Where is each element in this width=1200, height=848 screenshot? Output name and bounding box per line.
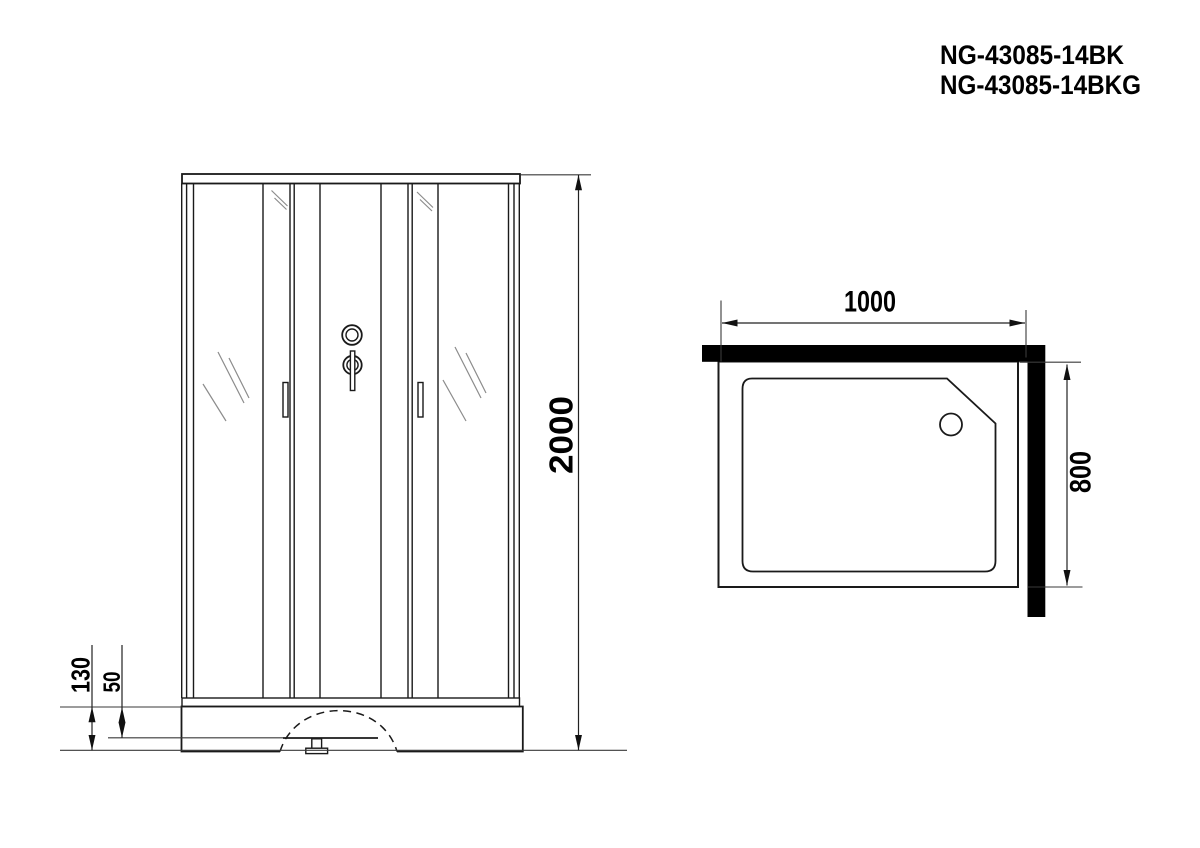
model-number-line2: NG-43085-14BKG	[940, 70, 1141, 100]
glass-hatch-marks	[203, 191, 486, 422]
right-door-handle	[418, 383, 423, 418]
drain-foot	[306, 739, 328, 754]
drain-foot-flange	[306, 748, 328, 753]
top-plan-view	[702, 345, 1045, 617]
dim-label-tray-inner-height: 50	[99, 672, 126, 693]
bottom-rail	[182, 698, 520, 707]
cabin-top-bar	[182, 174, 520, 184]
model-number-line1: NG-43085-14BK	[940, 40, 1124, 70]
plan-side-wall	[1028, 345, 1046, 617]
tray-base-outline	[182, 707, 523, 752]
apron-arch-dashed	[280, 711, 397, 752]
dim-label-depth: 800	[1065, 451, 1098, 493]
dim-label-total-height: 2000	[543, 396, 580, 474]
mixer-controls	[342, 325, 362, 390]
technical-drawing-page: 2000 130 50	[0, 0, 1200, 848]
plan-back-wall	[702, 345, 1045, 362]
shower-cabin-drawing: 2000 130 50	[0, 0, 1200, 848]
shower-knob-outer	[342, 325, 362, 345]
dim-label-base-height: 130	[66, 657, 96, 693]
drain-circle	[940, 414, 962, 436]
left-door-handle	[283, 383, 288, 418]
front-elevation-view	[182, 174, 523, 754]
glass-panel-lines	[182, 184, 520, 699]
mixer-lever	[350, 351, 354, 391]
plan-tray-inner	[743, 379, 996, 572]
drain-foot-stem	[312, 739, 322, 748]
front-view-dimensions: 2000 130 50	[60, 175, 627, 751]
dim-label-width: 1000	[844, 286, 896, 319]
model-labels: NG-43085-14BK NG-43085-14BKG	[940, 40, 1141, 100]
